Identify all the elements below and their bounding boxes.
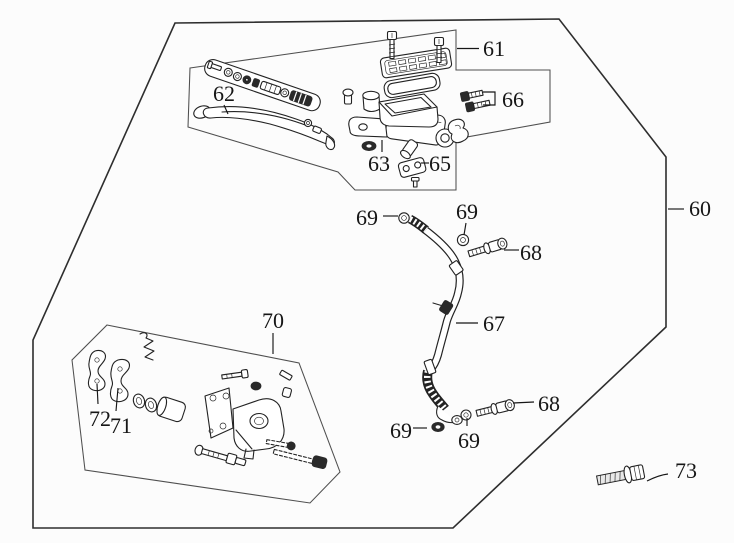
part-label-71: 71 [110,413,132,438]
part-label-69-bottom-center: 69 [458,428,480,453]
banjo-bolt-lower-drawing [475,399,515,419]
part-label-70: 70 [262,308,284,333]
part-label-72: 72 [89,406,111,431]
part-label-69-top-right: 69 [456,199,478,224]
part-label-66: 66 [502,87,524,112]
banjo-bolt-upper-drawing [467,237,508,259]
brake-hose-drawing [410,219,464,424]
caliper-piston-drawing [155,396,187,423]
switch-bracket-drawing [398,157,427,187]
part-label-63: 63 [368,151,390,176]
part-label-60: 60 [689,196,711,221]
part-label-67: 67 [483,311,505,336]
caliper-assembly-drawing [88,333,327,469]
part-label-68-upper: 68 [520,240,542,265]
master-cylinder-drawing [343,89,468,160]
exploded-diagram: 60 61 62 63 65 66 67 68 68 69 69 69 69 7… [0,0,734,543]
washer-icon [457,234,468,245]
part-label-68-lower: 68 [538,391,560,416]
pad-spring-drawing [140,333,154,360]
reservoir-cap-drawing [380,32,452,99]
part-label-69-bottom-left: 69 [390,418,412,443]
part-label-69-top-left: 69 [356,205,378,230]
washer-icon [399,213,409,223]
part-label-65: 65 [429,151,451,176]
part-label-73: 73 [675,458,697,483]
brake-pad-inner-drawing [110,359,129,401]
washer-icon [461,410,471,420]
cap-screw-icon [388,32,397,59]
flange-bolt-drawing [596,463,645,489]
part-label-61: 61 [483,36,505,61]
part-label-62: 62 [213,81,235,106]
